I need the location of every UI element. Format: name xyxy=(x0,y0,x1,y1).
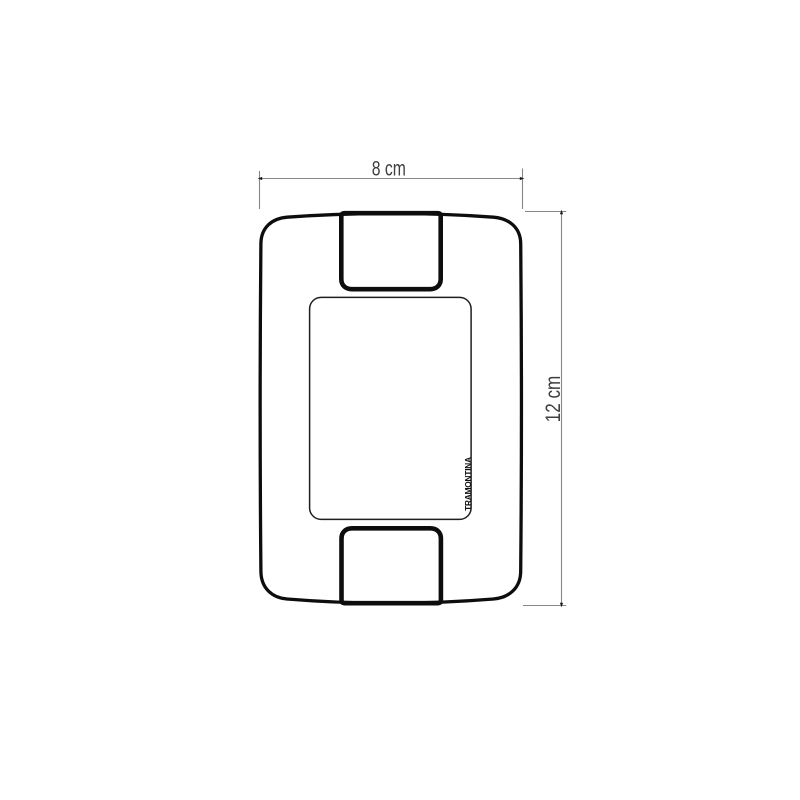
svg-text:8 cm: 8 cm xyxy=(372,156,406,180)
svg-text:TRAMONTINA: TRAMONTINA xyxy=(463,457,473,511)
svg-text:12 cm: 12 cm xyxy=(541,376,565,422)
